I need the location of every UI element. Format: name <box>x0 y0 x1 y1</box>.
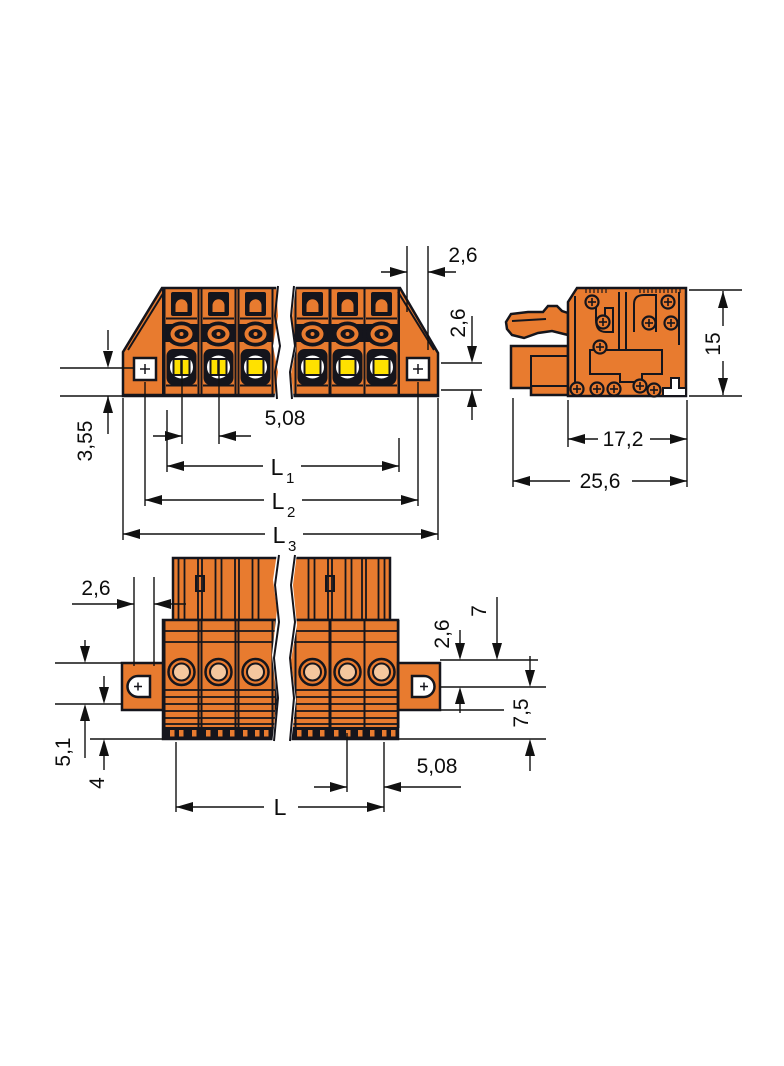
dim-label-bottom-length: L <box>274 794 287 820</box>
dim-bottom-length: L <box>176 742 384 820</box>
dim-label-bottom-flange-offset: 2,6 <box>431 619 454 648</box>
side-view <box>506 288 686 397</box>
bottom-plug-right <box>289 558 390 620</box>
dim-label-front-l3-subscript: 3 <box>288 538 296 555</box>
dim-label-bottom-flange-span: 7 <box>468 605 491 617</box>
dim-label-front-flange-hole-height: 3,55 <box>74 421 97 462</box>
dim-bottom-rear-depth: 7,5 <box>510 656 535 771</box>
dim-label-front-l1: L <box>271 454 284 480</box>
dim-label-side-housing-depth: 17,2 <box>603 428 644 451</box>
bottom-plug-left <box>173 558 279 620</box>
dim-label-front-right-offset: 2,6 <box>447 308 470 337</box>
dim-label-bottom-flange-height: 5,1 <box>52 737 75 766</box>
dim-label-bottom-slot-width: 2,6 <box>81 577 110 600</box>
dim-front-right-offset: 2,6 <box>441 308 482 420</box>
dim-bottom-foot-depth: 4 <box>86 676 109 789</box>
side-lower-block <box>511 346 568 395</box>
dim-side-height: 15 <box>689 290 742 396</box>
dim-label-front-l2: L <box>272 488 285 514</box>
dim-label-front-pole-pitch: 5,08 <box>265 407 306 430</box>
dim-bottom-pole-pitch: 5,08 <box>314 733 461 812</box>
dim-label-side-height: 15 <box>702 332 725 355</box>
dim-label-bottom-pole-pitch: 5,08 <box>417 755 458 778</box>
bottom-contact-band <box>289 727 398 739</box>
drawing-canvas: 2,6 2,6 3,55 <box>0 0 784 1066</box>
dim-bottom-flange-span: 7 <box>468 597 502 660</box>
bottom-view <box>122 553 440 744</box>
dim-label-front-top-offset: 2,6 <box>448 244 477 267</box>
technical-drawing: 2,6 2,6 3,55 <box>0 0 784 1066</box>
side-latch-arm <box>506 306 568 338</box>
dim-label-front-l2-subscript: 2 <box>287 504 295 521</box>
dim-label-bottom-rear-depth: 7,5 <box>510 698 533 727</box>
dim-side-overall-depth: 25,6 <box>513 398 687 493</box>
dim-front-l2: L 2 <box>145 382 418 521</box>
dim-label-front-l1-subscript: 1 <box>286 470 294 487</box>
front-view <box>123 284 438 401</box>
dim-label-front-l3: L <box>273 522 286 548</box>
dim-label-bottom-foot-depth: 4 <box>86 777 109 789</box>
dim-label-side-overall-depth: 25,6 <box>580 470 621 493</box>
